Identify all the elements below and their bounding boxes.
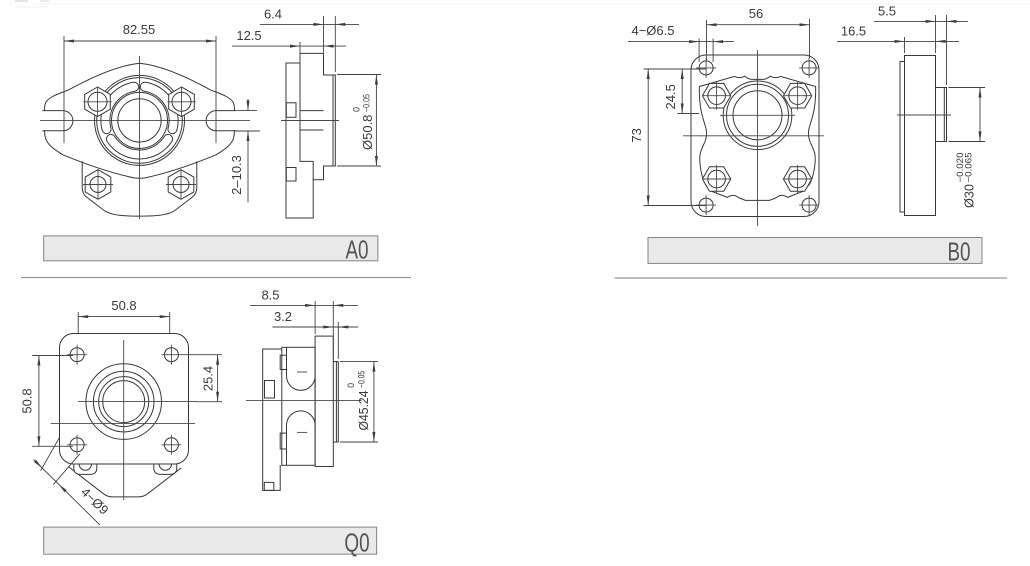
svg-text:4−Ø6.5: 4−Ø6.5: [631, 23, 674, 38]
svg-text:A0: A0: [345, 236, 368, 264]
svg-text:Ø45.24: Ø45.24: [356, 391, 371, 431]
svg-text:82.55: 82.55: [123, 22, 156, 37]
svg-text:Q0: Q0: [344, 529, 369, 557]
svg-text:Ø50.8: Ø50.8: [360, 115, 375, 150]
svg-text:50.8: 50.8: [20, 388, 35, 413]
svg-text:24.5: 24.5: [663, 84, 678, 109]
svg-text:2–10.3: 2–10.3: [229, 155, 244, 195]
svg-text:25.4: 25.4: [201, 366, 216, 391]
svg-text:B0: B0: [947, 238, 970, 266]
svg-text:73: 73: [629, 128, 644, 142]
svg-text:Ø30: Ø30: [962, 184, 977, 208]
svg-text:−0.05: −0.05: [362, 94, 372, 112]
svg-text:−0.065: −0.065: [964, 153, 974, 183]
svg-text:12.5: 12.5: [236, 28, 261, 43]
svg-text:0: 0: [352, 107, 362, 112]
svg-text:50.8: 50.8: [111, 298, 136, 313]
svg-text:4−Ø9: 4−Ø9: [78, 484, 112, 517]
svg-text:0: 0: [346, 383, 356, 388]
svg-text:3.2: 3.2: [274, 309, 292, 324]
svg-text:−0.05: −0.05: [356, 371, 366, 388]
svg-text:6.4: 6.4: [264, 7, 282, 22]
svg-text:56: 56: [749, 6, 763, 21]
svg-text:8.5: 8.5: [261, 288, 279, 303]
svg-text:5.5: 5.5: [878, 4, 896, 19]
svg-text:16.5: 16.5: [841, 24, 866, 39]
